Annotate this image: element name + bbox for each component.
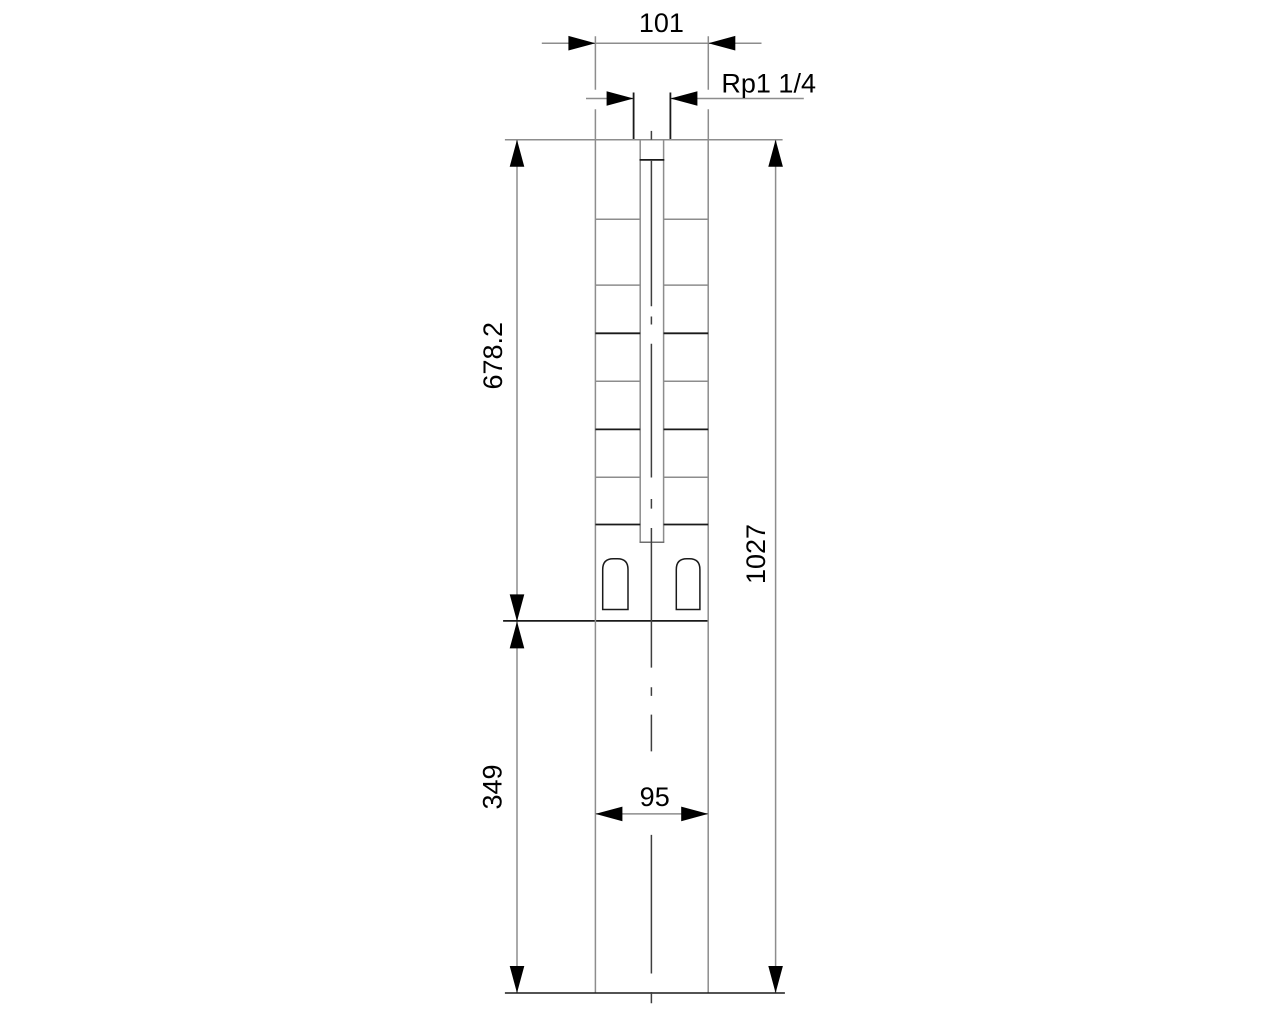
svg-text:Rp1 1/4: Rp1 1/4 bbox=[721, 69, 816, 99]
svg-text:678.2: 678.2 bbox=[478, 322, 508, 390]
svg-text:349: 349 bbox=[478, 764, 508, 809]
svg-text:101: 101 bbox=[639, 8, 684, 38]
svg-text:95: 95 bbox=[640, 782, 670, 812]
svg-text:1027: 1027 bbox=[741, 524, 771, 584]
